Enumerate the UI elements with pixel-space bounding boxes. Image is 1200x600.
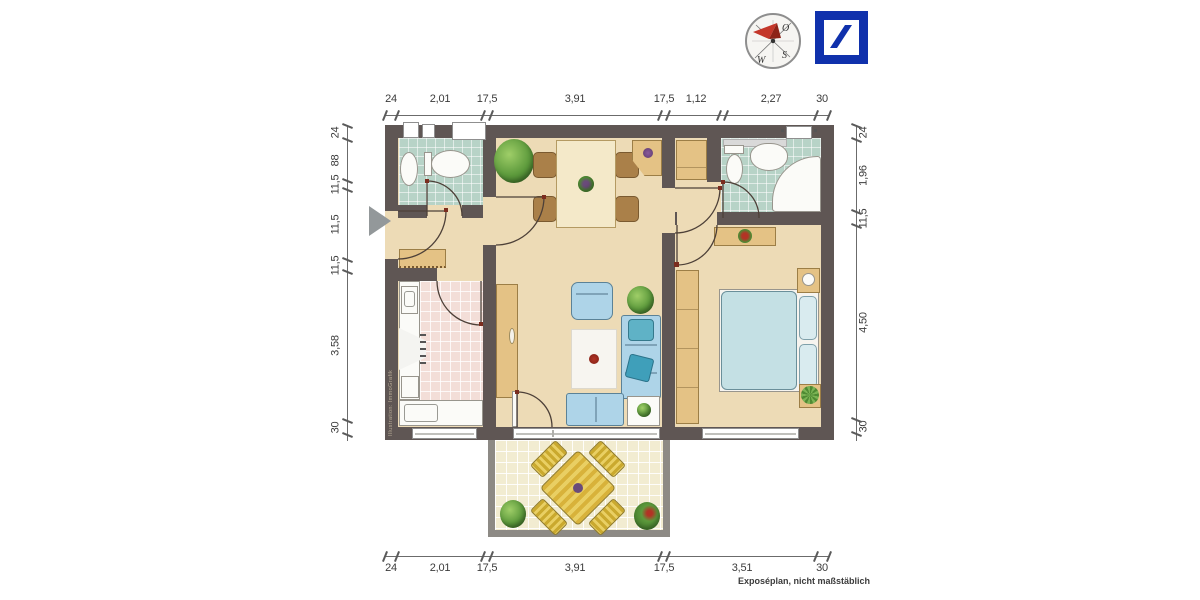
entrance-arrow-icon: [369, 206, 391, 236]
entrance-door-swing: [398, 211, 446, 259]
dimension-line: [385, 556, 830, 557]
dimension-line: [347, 126, 348, 441]
bathroom-door-swing: [723, 182, 759, 218]
nook-door-swing: [675, 188, 720, 233]
floorplan-page: O S W 24 2,01 17,5 3,91 17,5 1,12 2,27 3…: [0, 0, 1200, 600]
dimension-line: [856, 126, 857, 441]
balcony-door-swing: [517, 392, 552, 427]
bedroom-door-swing: [677, 225, 717, 265]
dimension-line: [385, 115, 830, 116]
kitchen-door-swing: [437, 281, 481, 325]
living-door-swing: [496, 197, 544, 245]
door-swing-overlay: [0, 0, 1200, 600]
